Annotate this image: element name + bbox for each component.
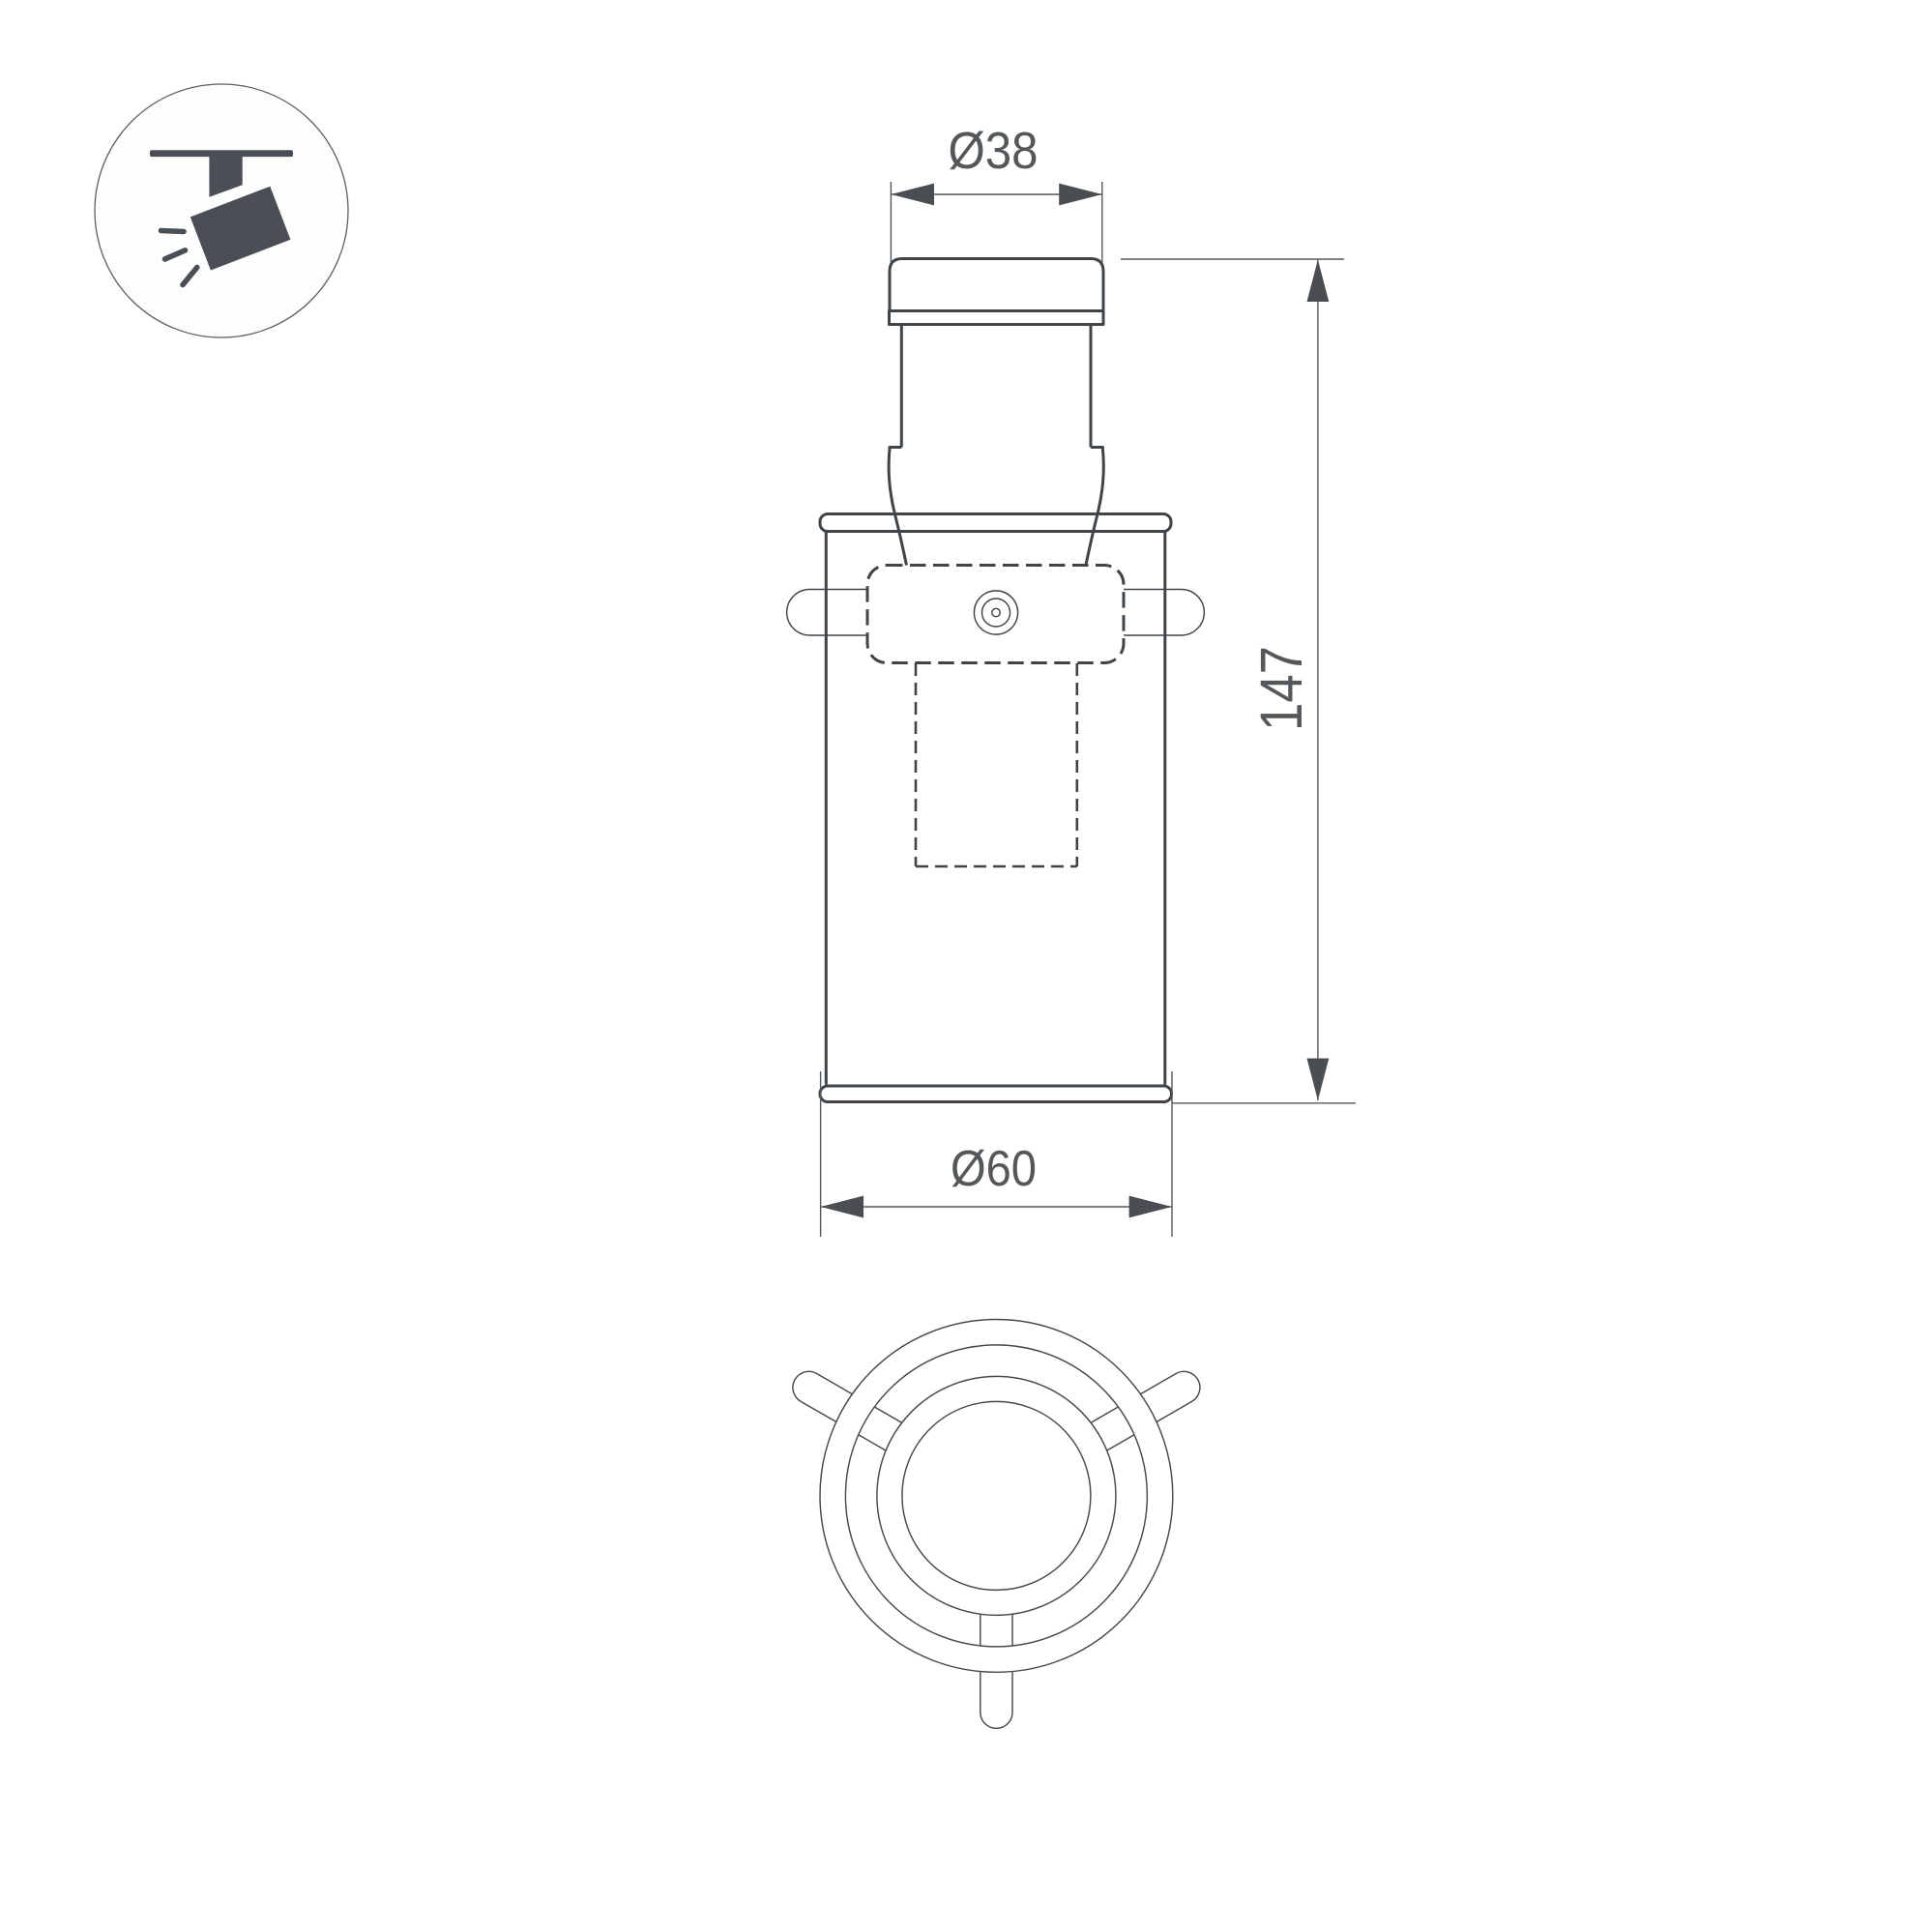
svg-text:147: 147 [1248, 646, 1314, 731]
svg-text:Ø38: Ø38 [949, 122, 1039, 180]
svg-text:Ø60: Ø60 [951, 1141, 1037, 1197]
